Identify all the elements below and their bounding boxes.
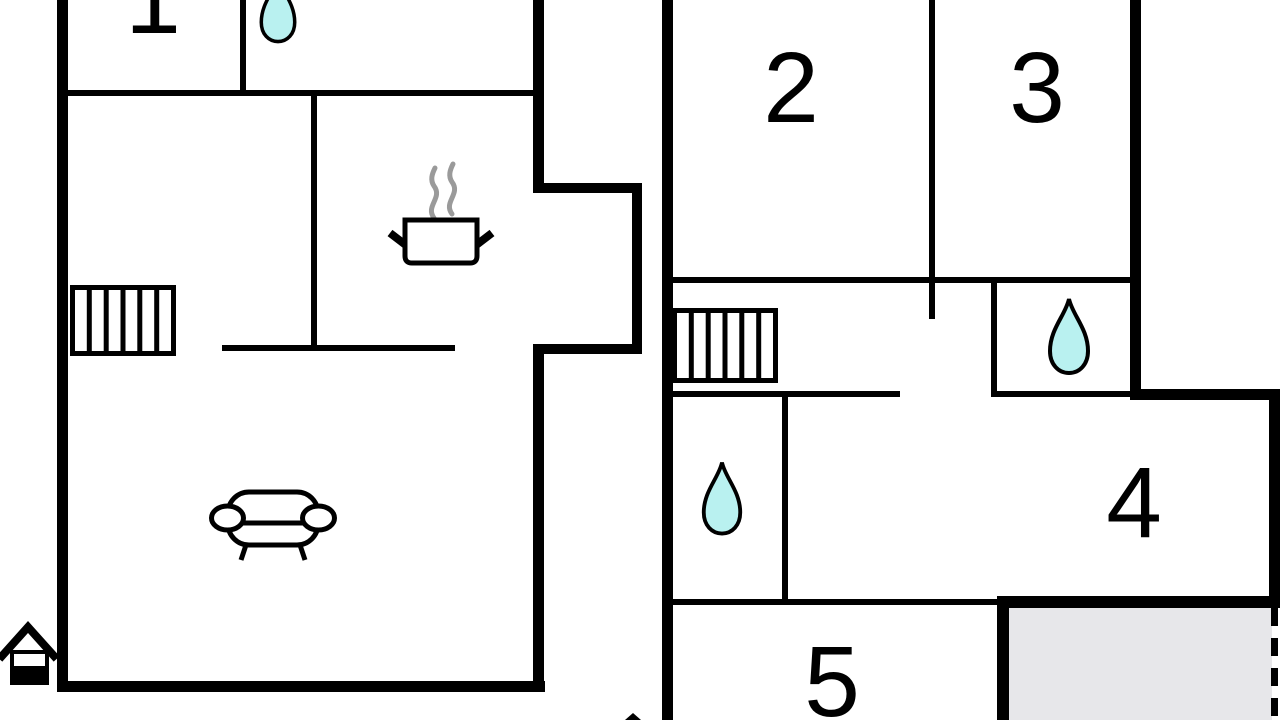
room-label-4: 4	[1105, 453, 1163, 553]
wall-segment	[240, 0, 246, 96]
wall-segment	[533, 344, 544, 692]
room-label-1: 1	[124, 0, 182, 49]
wall-segment	[662, 391, 900, 397]
room-label-5: 5	[803, 632, 861, 720]
wall-segment	[782, 391, 788, 605]
wall-segment	[533, 344, 642, 354]
house-entrance-icon-partial	[622, 710, 646, 720]
wall-segment	[1130, 0, 1141, 399]
wall-segment	[929, 0, 935, 319]
room-label-3: 3	[1008, 38, 1066, 138]
wall-segment	[57, 0, 68, 692]
wall-segment	[1269, 389, 1280, 608]
wall-segment	[222, 345, 455, 351]
wall-segment	[991, 283, 997, 397]
wall-segment	[991, 391, 1141, 397]
water-drop-icon	[1044, 292, 1094, 380]
steam-icon	[431, 164, 454, 218]
wall-segment	[662, 277, 1141, 283]
stairs-icon	[70, 285, 176, 356]
wall-segment	[662, 599, 997, 605]
wall-segment	[311, 90, 317, 351]
terrace-dashed-boundary	[1271, 608, 1278, 720]
wall-segment	[57, 90, 544, 96]
water-drop-icon	[256, 0, 300, 48]
stove-pot-icon	[380, 160, 505, 270]
room-label-2: 2	[762, 38, 820, 138]
house-entrance-icon	[0, 620, 60, 690]
wall-segment	[57, 681, 545, 692]
wall-segment	[533, 183, 642, 193]
floor-plan: 1 2 3 4 5	[0, 0, 1280, 720]
wall-segment	[533, 0, 544, 193]
wall-segment	[997, 596, 1009, 720]
wall-segment	[632, 183, 642, 354]
sofa-icon	[205, 484, 340, 564]
water-drop-icon	[698, 455, 746, 541]
wall-segment	[1130, 389, 1280, 400]
wall-segment	[997, 596, 1280, 608]
stairs-icon	[672, 308, 778, 383]
terrace-area	[1009, 608, 1272, 720]
